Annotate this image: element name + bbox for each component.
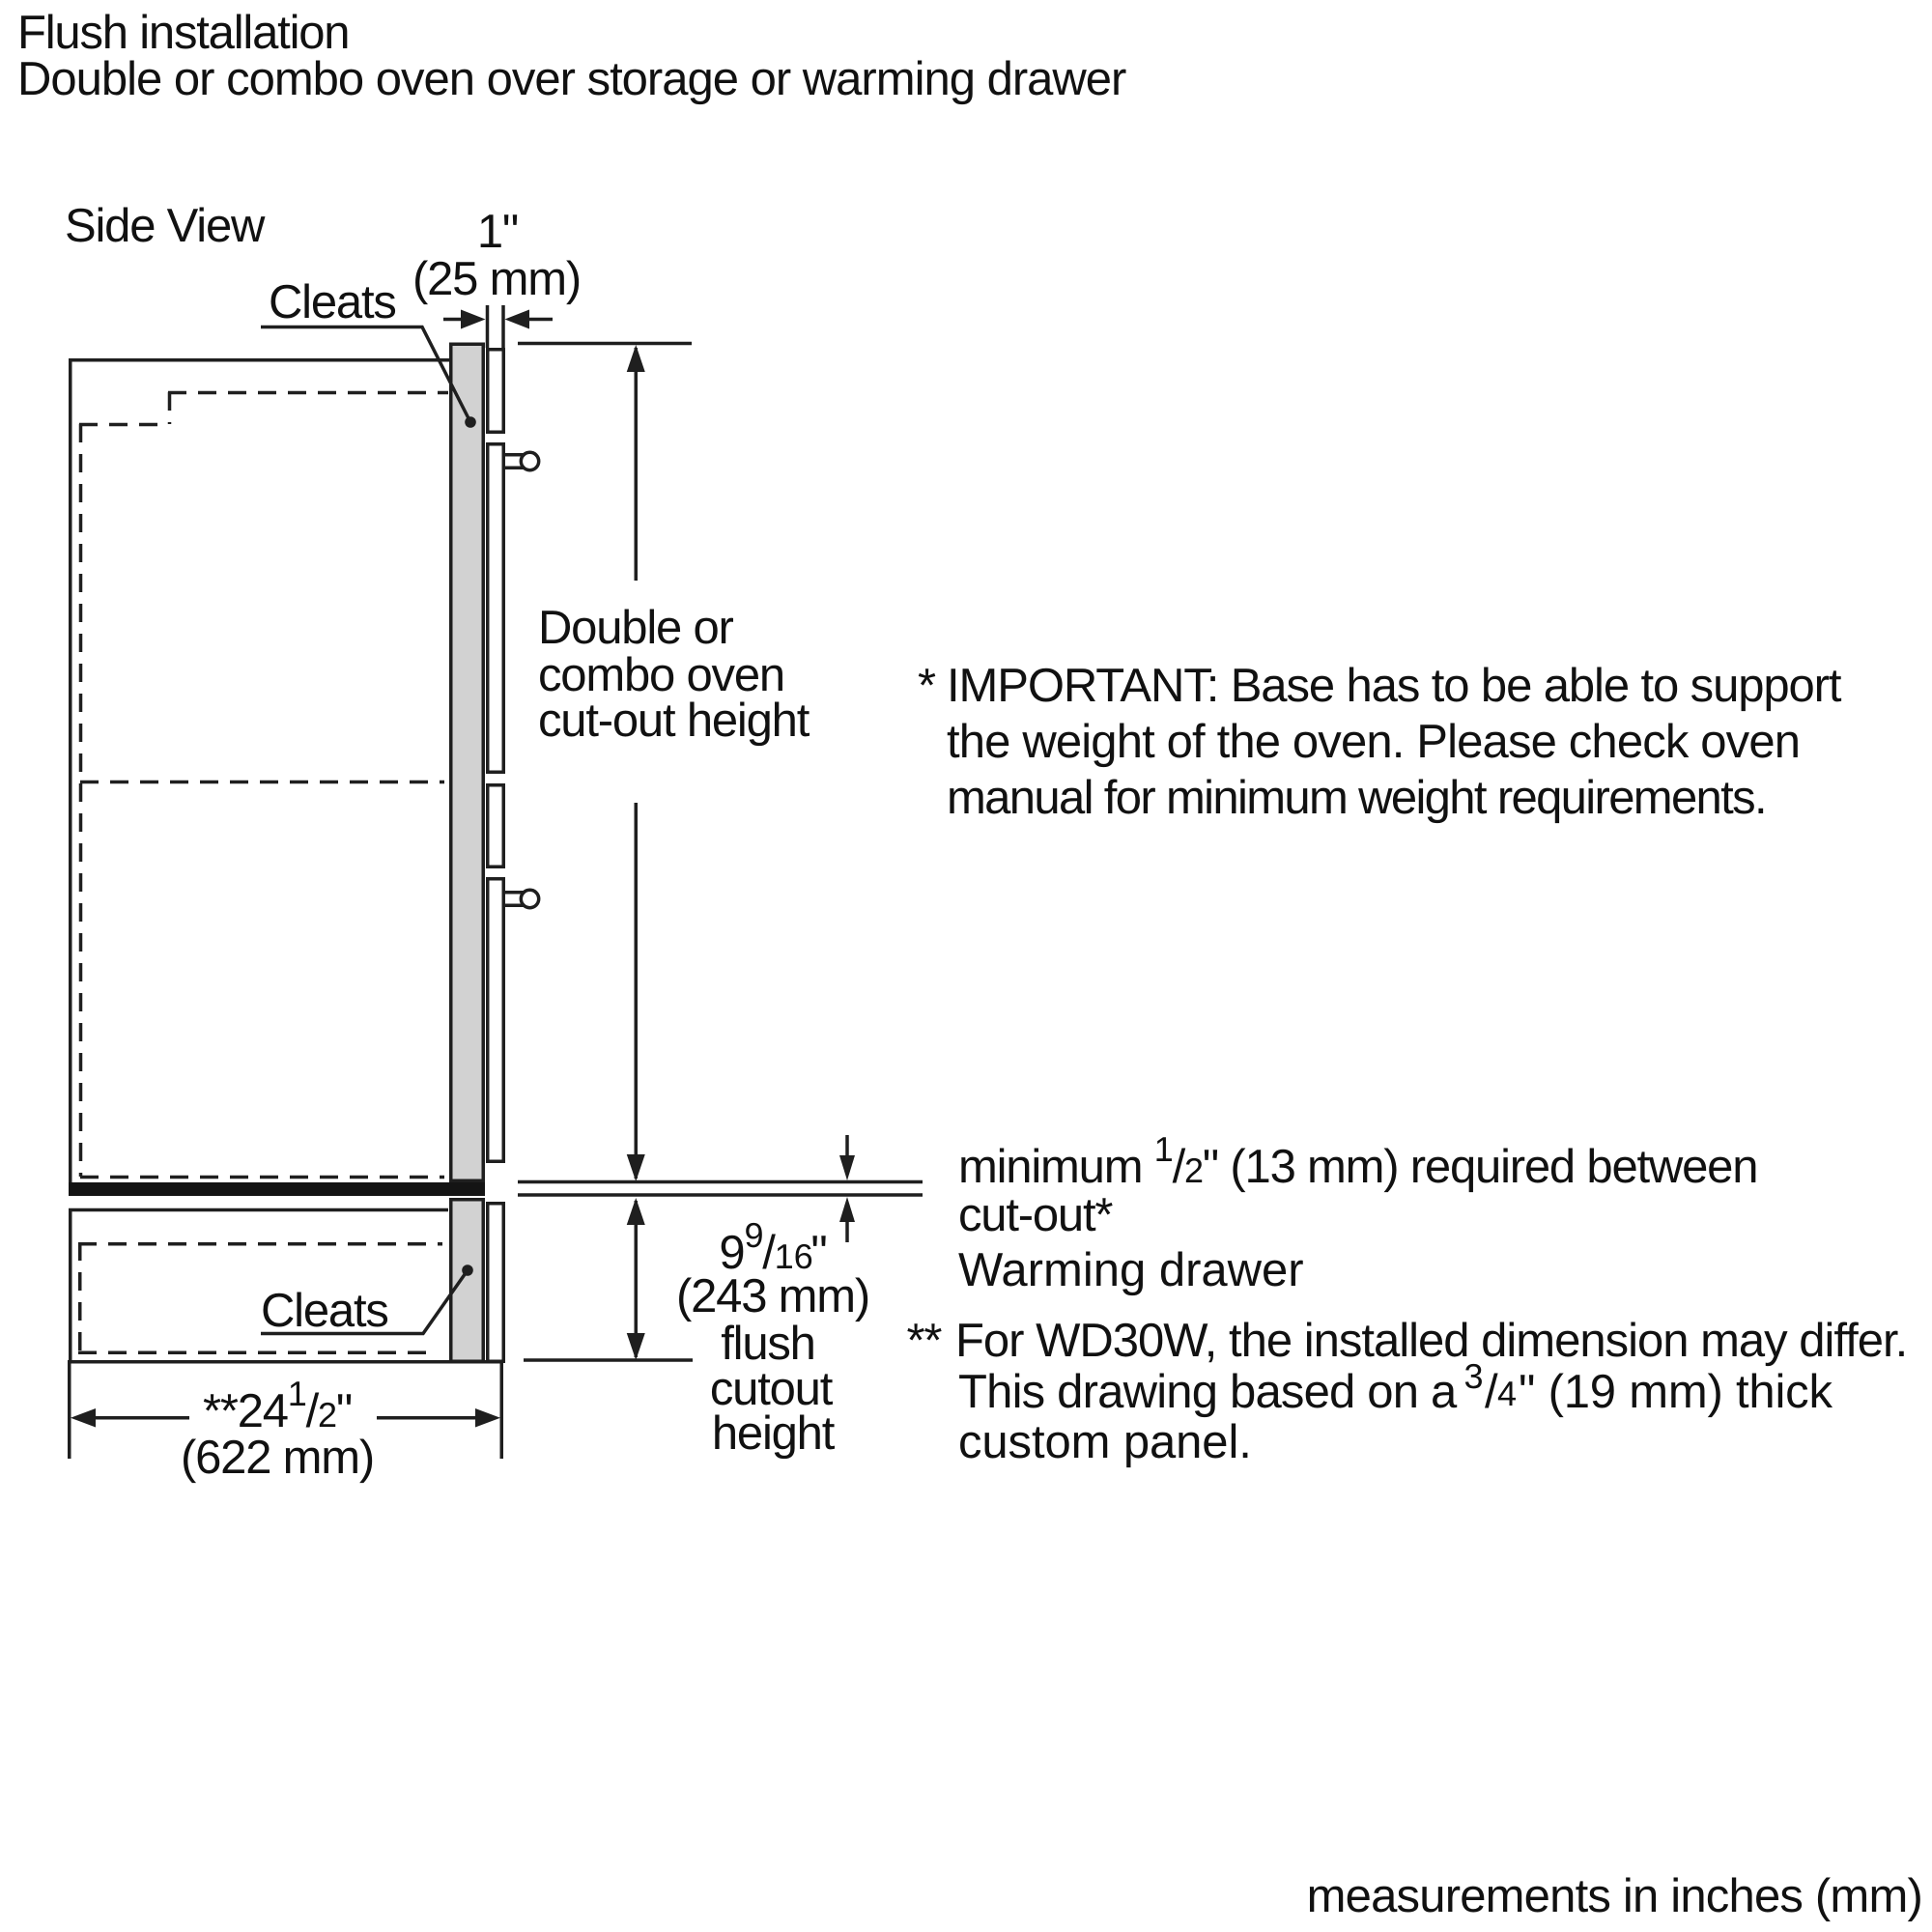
- svg-text:**: **: [907, 1315, 943, 1367]
- svg-text:/: /: [306, 1385, 320, 1437]
- svg-text:cut-out height: cut-out height: [538, 695, 810, 747]
- svg-text:*: *: [918, 660, 936, 712]
- svg-text:Cleats: Cleats: [261, 1285, 388, 1337]
- svg-text:cut-out*: cut-out*: [958, 1189, 1113, 1241]
- svg-text:combo oven: combo oven: [538, 649, 784, 701]
- svg-text:Double or: Double or: [538, 602, 734, 654]
- svg-text:height: height: [712, 1407, 836, 1460]
- svg-text:IMPORTANT: Base has to be able: IMPORTANT: Base has to be able to suppor…: [947, 660, 1842, 712]
- svg-text:1": 1": [477, 206, 518, 258]
- svg-text:manual for minimum weight requ: manual for minimum weight requirements.: [947, 772, 1766, 824]
- svg-text:/: /: [1173, 1141, 1186, 1193]
- svg-text:(25 mm): (25 mm): [412, 253, 581, 305]
- svg-text:the weight of the oven. Please: the weight of the oven. Please check ove…: [947, 716, 1800, 768]
- svg-text:This drawing based on a: This drawing based on a: [958, 1366, 1458, 1418]
- svg-text:Cleats: Cleats: [269, 276, 396, 328]
- svg-text:**24: **24: [203, 1385, 288, 1437]
- svg-text:(243 mm): (243 mm): [676, 1270, 869, 1322]
- svg-text:" (19 mm) thick: " (19 mm) thick: [1519, 1366, 1833, 1418]
- svg-text:Warming drawer: Warming drawer: [958, 1244, 1304, 1296]
- svg-text:": ": [336, 1385, 352, 1437]
- svg-text:measurements in inches (mm): measurements in inches (mm): [1307, 1870, 1922, 1922]
- svg-text:custom panel.: custom panel.: [958, 1416, 1252, 1468]
- svg-text:(622 mm): (622 mm): [181, 1432, 374, 1484]
- svg-text:minimum: minimum: [958, 1141, 1142, 1193]
- svg-text:Double or combo oven over stor: Double or combo oven over storage or war…: [17, 53, 1126, 105]
- svg-text:Flush installation: Flush installation: [17, 7, 349, 59]
- svg-text:For WD30W, the installed dimen: For WD30W, the installed dimension may d…: [955, 1315, 1907, 1367]
- svg-text:" (13 mm) required between: " (13 mm) required between: [1203, 1141, 1757, 1193]
- svg-text:/: /: [1485, 1366, 1498, 1418]
- svg-text:Side View: Side View: [65, 200, 266, 252]
- svg-text:flush: flush: [721, 1318, 815, 1370]
